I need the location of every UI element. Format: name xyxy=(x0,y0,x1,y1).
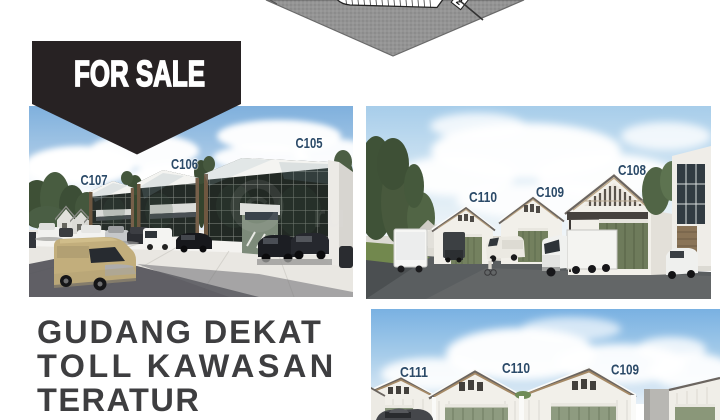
svg-text:C107: C107 xyxy=(81,172,108,189)
svg-text:C105: C105 xyxy=(296,135,323,152)
svg-text:C108: C108 xyxy=(618,162,646,179)
svg-text:C110: C110 xyxy=(502,360,530,377)
svg-text:C110: C110 xyxy=(469,189,497,206)
svg-text:C109: C109 xyxy=(536,184,564,201)
svg-text:C109: C109 xyxy=(611,362,639,379)
svg-text:ru: ru xyxy=(313,198,345,234)
svg-text:C111: C111 xyxy=(400,364,428,381)
svg-text:FOR SALE: FOR SALE xyxy=(74,54,205,94)
